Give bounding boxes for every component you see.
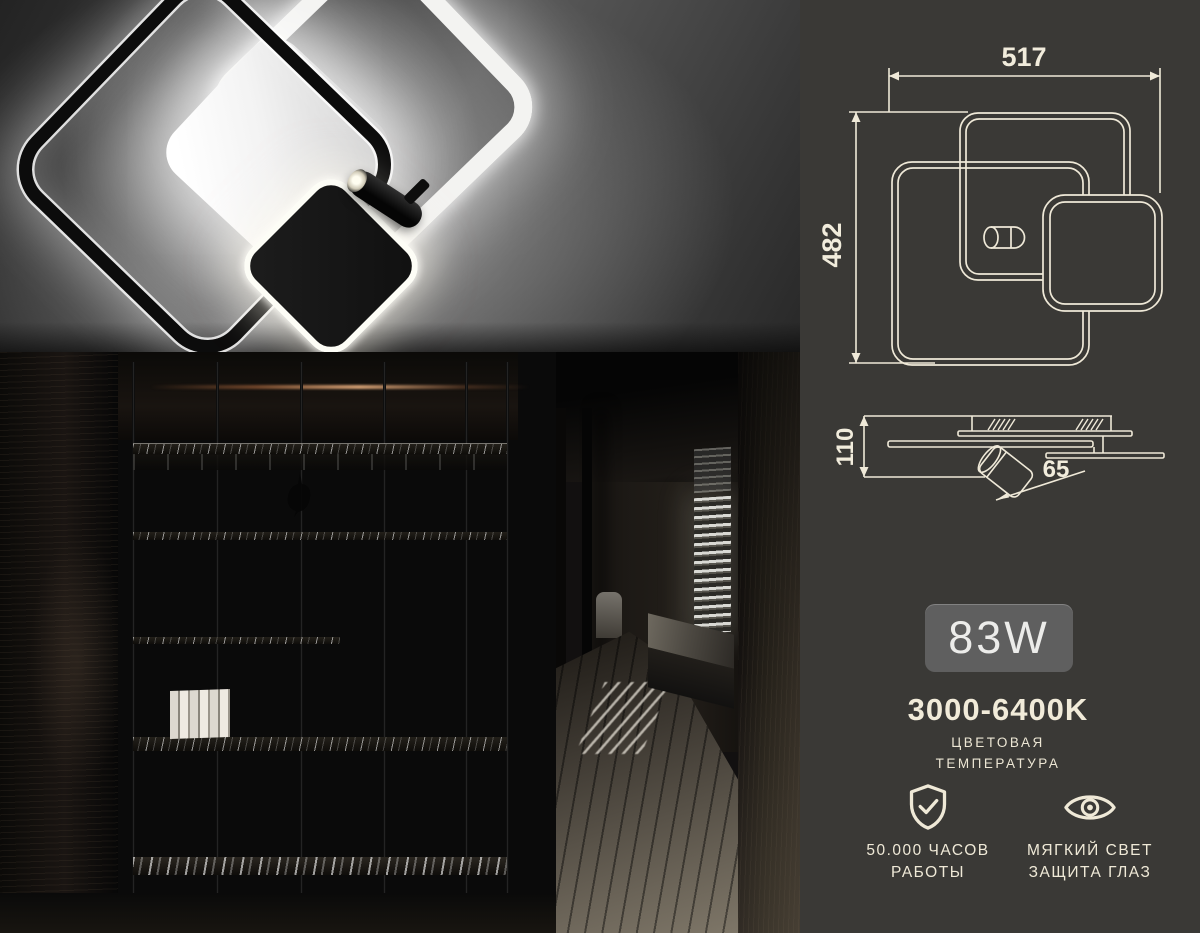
shelf-grid (133, 454, 507, 470)
width-dimension-label: 517 (1001, 42, 1046, 72)
chair (596, 592, 622, 638)
shelf (133, 444, 507, 454)
power-badge: 83W (925, 604, 1073, 672)
side-height-dimension-label: 110 (832, 428, 859, 467)
spot-dimension (996, 471, 1085, 500)
mount-hatching (988, 419, 1103, 430)
color-temperature-caption-line2: ТЕМПЕРАТУРА (936, 756, 1061, 771)
color-temperature-value: 3000-6400K (828, 692, 1168, 728)
left-wall (0, 352, 118, 933)
top-view-drawing (892, 113, 1162, 365)
feature-soft-light: МЯГКИЙ СВЕТ ЗАЩИТА ГЛАЗ (1006, 782, 1174, 885)
eye-icon (1063, 789, 1117, 826)
product-photo (0, 0, 800, 933)
window-blinds (694, 496, 731, 635)
height-dimension-label: 482 (817, 222, 847, 267)
books (170, 689, 230, 739)
bird-figurine (280, 470, 320, 518)
color-temperature-caption: ЦВЕТОВАЯ ТЕМПЕРАТУРА (828, 733, 1168, 775)
room-interior (0, 352, 800, 933)
spec-panel: 517 482 (800, 0, 1200, 933)
shelf-rod (465, 362, 468, 897)
corridor (556, 352, 800, 933)
feature-soft-light-label: МЯГКИЙ СВЕТ ЗАЩИТА ГЛАЗ (1006, 840, 1174, 885)
window-upper (694, 447, 731, 494)
shelving-unit (128, 352, 510, 933)
product-card: 517 482 (0, 0, 1200, 933)
dimension-drawings: 517 482 (800, 0, 1200, 530)
shelf (133, 857, 507, 875)
room-floor (0, 893, 560, 933)
shelf (133, 737, 507, 751)
side-view-drawing (864, 416, 1164, 499)
spot-dimension-label: 65 (1043, 456, 1070, 483)
width-dimension (889, 68, 1160, 193)
shelf-rod (132, 362, 135, 897)
color-temperature-caption-line1: ЦВЕТОВАЯ (951, 735, 1044, 750)
power-badge-label: 83W (948, 612, 1050, 664)
shelf-rod (506, 362, 509, 897)
feature-lifespan: 50.000 ЧАСОВ РАБОТЫ (844, 782, 1012, 885)
shelf-rod (300, 362, 303, 897)
feature-lifespan-label: 50.000 ЧАСОВ РАБОТЫ (844, 840, 1012, 885)
ceiling-light-fixture (0, 0, 800, 368)
shield-check-icon (906, 782, 950, 832)
spot-cylinder-top-view (984, 227, 1025, 248)
height-dimension (849, 112, 968, 363)
shelf (133, 637, 340, 644)
shelf-rod (216, 362, 219, 897)
shelf (133, 532, 507, 540)
shelf-rod (383, 362, 386, 897)
foreground-wall (738, 352, 800, 933)
